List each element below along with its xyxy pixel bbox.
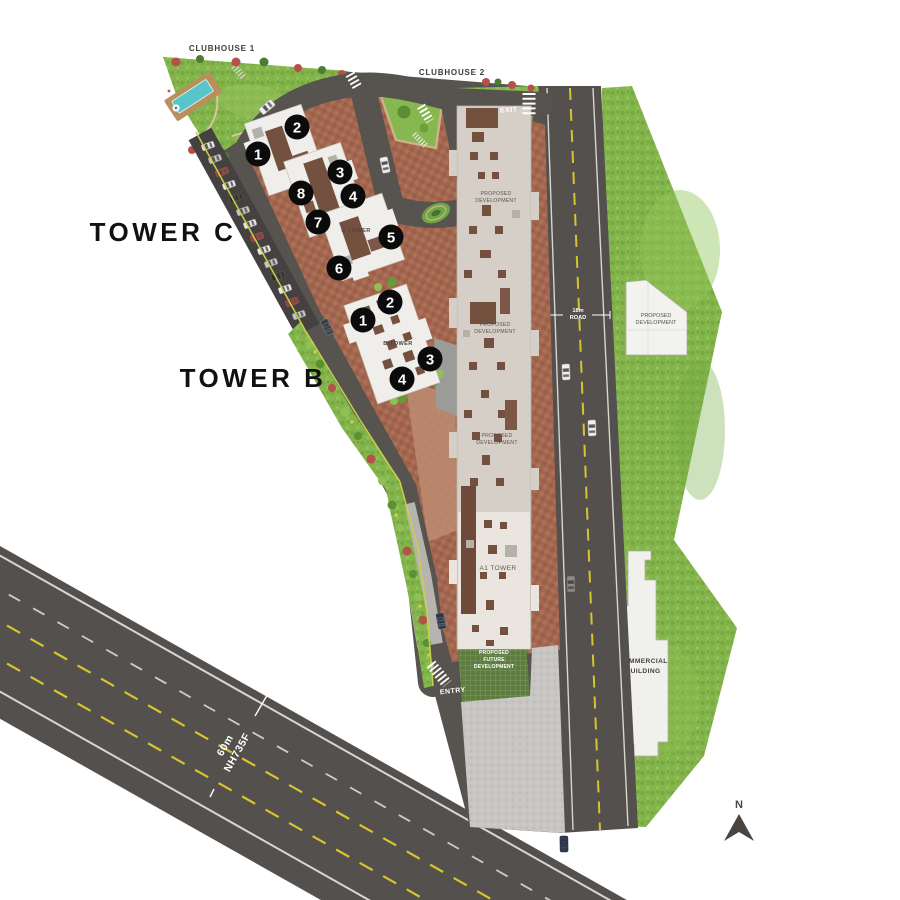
central-block3-label-2: DEVELOPMENT — [476, 440, 518, 446]
b-tower-tag: B-TOWER — [383, 341, 412, 347]
north-compass: N — [724, 799, 754, 841]
unit-badge-c2-label: 2 — [293, 120, 301, 137]
unit-badge-b3[interactable]: 3 — [418, 347, 443, 372]
site-plan-map: 60m NH735F PROPOSED DEVELOPMENT COMMERCI… — [0, 0, 900, 900]
tower-b-title: TOWER B — [180, 363, 327, 393]
road-18m-label-2: ROAD — [570, 315, 586, 321]
central-block2-label-1: PROPOSED — [479, 322, 510, 328]
unit-badge-c1[interactable]: 1 — [246, 142, 271, 167]
unit-badge-b3-label: 3 — [426, 352, 434, 369]
car-icon — [562, 364, 571, 380]
central-building[interactable]: PROPOSED DEVELOPMENT PROPOSED DEVELOPMEN… — [449, 106, 539, 649]
central-block1-label-1: PROPOSED — [480, 191, 511, 197]
future-dev-label-1: PROPOSED — [479, 650, 509, 656]
north-arrow-icon — [724, 814, 754, 841]
central-block2-label-2: DEVELOPMENT — [474, 329, 516, 335]
unit-badge-b1-label: 1 — [359, 313, 367, 330]
c-tower-tag: C-TOWER — [341, 228, 370, 234]
central-block3-label-1: PROPOSED — [481, 433, 512, 439]
unit-badge-c3[interactable]: 3 — [328, 160, 353, 185]
car-icon — [567, 576, 575, 592]
a1-tower-label: A1 TOWER — [480, 565, 517, 572]
right-proposed-label-1: PROPOSED — [641, 313, 672, 319]
unit-badge-b2-label: 2 — [386, 295, 394, 312]
clubhouse2-label: CLUBHOUSE 2 — [419, 68, 485, 77]
unit-badge-c5-label: 5 — [387, 230, 395, 247]
commercial-label-2: BUILDING — [625, 668, 660, 675]
unit-badge-c2[interactable]: 2 — [285, 115, 310, 140]
north-label: N — [735, 799, 743, 811]
unit-badge-b2[interactable]: 2 — [378, 290, 403, 315]
unit-badge-b4-label: 4 — [398, 372, 407, 389]
unit-badge-c6-label: 6 — [335, 261, 343, 278]
unit-badge-c7-label: 7 — [314, 215, 322, 232]
unit-badge-b4[interactable]: 4 — [390, 367, 415, 392]
right-proposed-label-2: DEVELOPMENT — [636, 320, 677, 326]
unit-badge-b1[interactable]: 1 — [351, 308, 376, 333]
unit-badge-c8[interactable]: 8 — [289, 181, 314, 206]
car-icon — [560, 836, 568, 852]
future-dev-label-2: FUTURE — [483, 657, 505, 663]
unit-badge-c5[interactable]: 5 — [379, 225, 404, 250]
car-icon — [588, 420, 597, 436]
road-18m-label-1: 18m — [572, 308, 583, 314]
future-dev-label-3: DEVELOPMENT — [474, 664, 514, 670]
unit-badge-c1-label: 1 — [254, 147, 262, 164]
future-development: PROPOSED FUTURE DEVELOPMENT — [458, 642, 530, 704]
unit-badge-c6[interactable]: 6 — [327, 256, 352, 281]
unit-badge-c4-label: 4 — [349, 189, 358, 206]
exit-label: EXIT — [500, 106, 518, 114]
unit-badge-c4[interactable]: 4 — [341, 184, 366, 209]
site-plan-svg: 60m NH735F PROPOSED DEVELOPMENT COMMERCI… — [0, 0, 900, 900]
unit-badge-c3-label: 3 — [336, 165, 344, 182]
unit-badge-c7[interactable]: 7 — [306, 210, 331, 235]
tower-c-title: TOWER C — [90, 217, 237, 247]
unit-badge-c8-label: 8 — [297, 186, 305, 203]
central-block1-label-2: DEVELOPMENT — [475, 198, 517, 204]
clubhouse1-label: CLUBHOUSE 1 — [189, 44, 255, 53]
